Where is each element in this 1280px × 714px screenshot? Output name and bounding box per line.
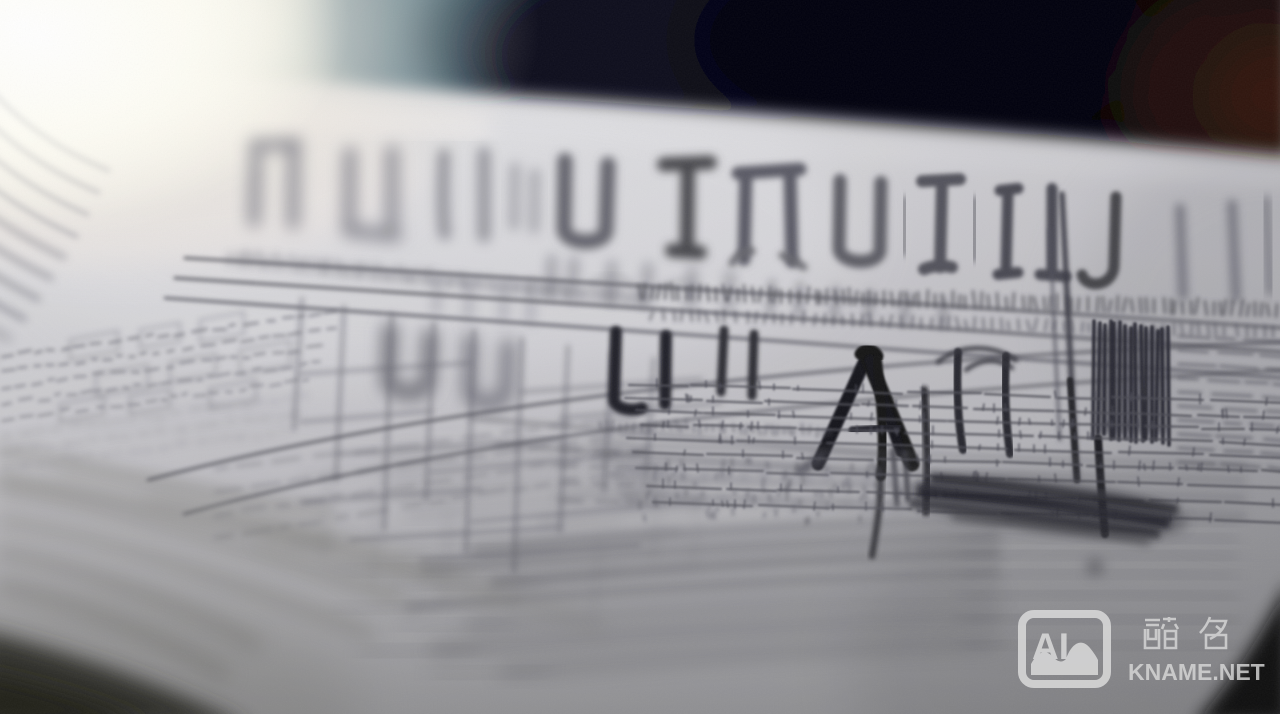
svg-text:KNAME.NET: KNAME.NET bbox=[1128, 659, 1265, 685]
